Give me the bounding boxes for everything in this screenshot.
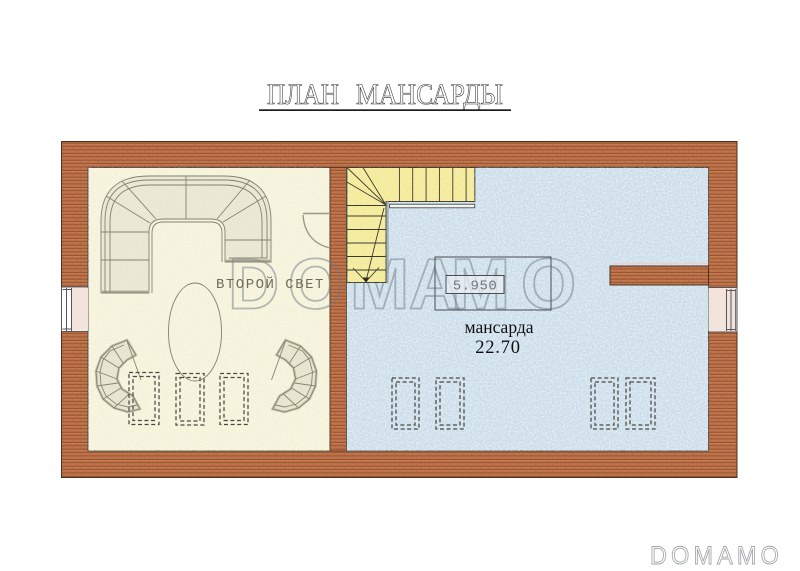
svg-text:мансарда: мансарда (464, 317, 533, 337)
svg-text:ВТОРОЙ СВЕТ: ВТОРОЙ СВЕТ (216, 276, 325, 293)
svg-text:DOMAMO: DOMAMO (650, 542, 783, 570)
svg-text:22.70: 22.70 (475, 338, 521, 358)
svg-text:5.950: 5.950 (453, 279, 498, 295)
svg-text:МАНСАРДЫ: МАНСАРДЫ (356, 78, 503, 111)
svg-text:ПЛАН: ПЛАН (267, 78, 339, 111)
